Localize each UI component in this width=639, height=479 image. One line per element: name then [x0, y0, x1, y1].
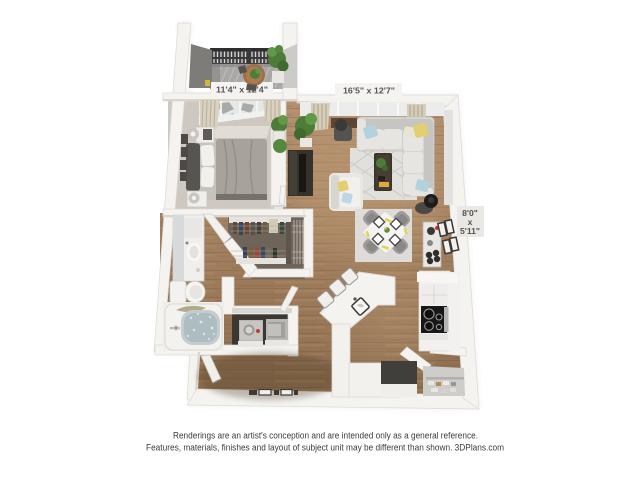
svg-text:5'11": 5'11" — [460, 226, 480, 236]
svg-text:11'4" x 12'4": 11'4" x 12'4" — [216, 85, 268, 95]
svg-text:Renderings are an artist's con: Renderings are an artist's conception an… — [173, 431, 478, 442]
svg-text:Features, materials, finishes: Features, materials, finishes and layout… — [146, 443, 504, 454]
svg-text:16'5" x 12'7": 16'5" x 12'7" — [343, 86, 395, 96]
